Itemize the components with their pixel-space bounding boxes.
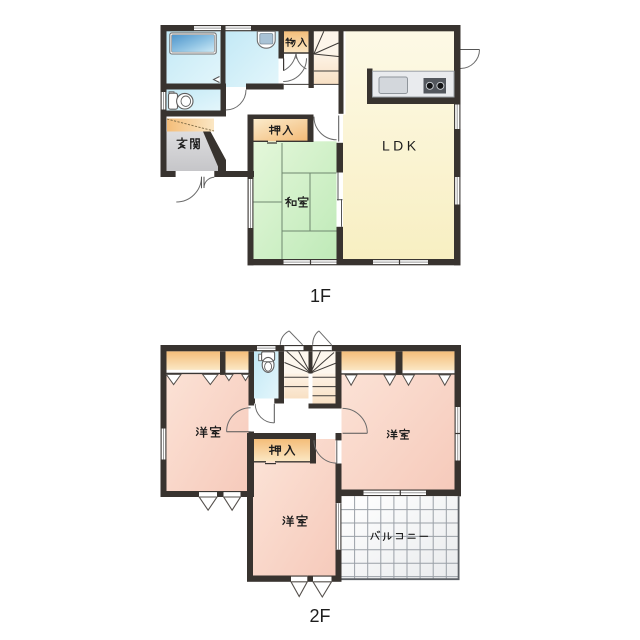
- svg-text:2F: 2F: [310, 606, 331, 626]
- svg-text:1F: 1F: [310, 286, 331, 306]
- svg-text:LDK: LDK: [382, 138, 419, 154]
